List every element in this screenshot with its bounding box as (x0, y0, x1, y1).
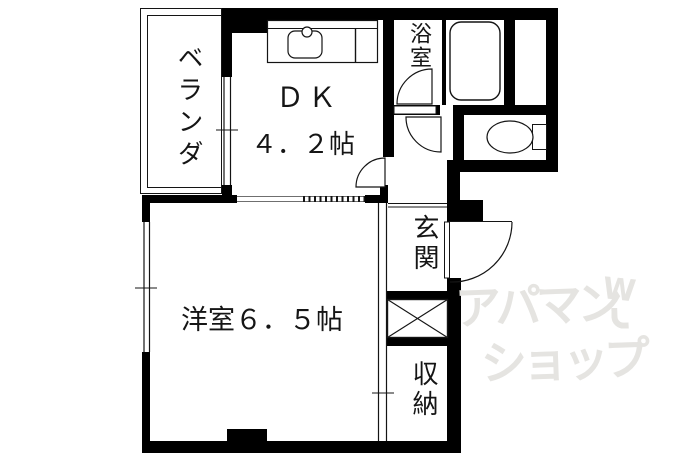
wall-segment (453, 160, 558, 172)
wall-segment (447, 160, 460, 222)
wall-segment (222, 185, 232, 195)
wall-segment (142, 352, 150, 442)
wall-segment (365, 195, 388, 203)
wall-segment (453, 115, 464, 160)
sliding-door-dk-western (237, 197, 365, 202)
kitchen-counter-icon (268, 21, 378, 63)
room-label-storage: 収納 (405, 360, 442, 420)
wall-pillar (227, 429, 267, 442)
door-arc-bathroom (397, 69, 432, 104)
wall-segment (447, 278, 461, 453)
wall-segment (546, 8, 558, 172)
entrance-door (445, 222, 513, 283)
wall-segment (142, 195, 237, 203)
wall-segment (453, 105, 558, 115)
room-label-western-room: 洋室６．５帖 (181, 298, 343, 337)
wall-segment (460, 200, 483, 222)
room-label-entrance: 玄関 (406, 214, 443, 274)
wall-segment (383, 8, 394, 157)
wall-segment (442, 20, 446, 105)
crossed-box (388, 300, 448, 338)
wall-segment (387, 337, 460, 346)
wall-segment (504, 16, 515, 105)
wall-segment (142, 441, 461, 453)
genkan-step-line (388, 204, 447, 208)
wall-segment (387, 291, 460, 300)
wall-segment (222, 33, 232, 77)
room-label-dk: ＤＫ (276, 76, 340, 116)
door-arc-dk-hall (356, 158, 385, 187)
room-size-dk: ４．２帖 (251, 124, 355, 161)
window-veranda-dk (216, 77, 238, 185)
door-arc-toilet (406, 117, 441, 152)
floorplan-image: ベランダ 浴室 ＤＫ ４．２帖 洋室６．５帖 玄関 収納 アパマン W ショップ (0, 0, 690, 460)
door-arc-entrance (450, 222, 512, 282)
bathtub-icon (450, 22, 500, 100)
toilet-icon (487, 121, 547, 153)
bathroom-door-sill (394, 106, 436, 114)
floorplan-linework (0, 0, 690, 460)
faucet-icon (302, 27, 312, 37)
room-label-bathroom: 浴室 (402, 22, 434, 70)
wall-segment (222, 20, 268, 33)
window-western-room (135, 222, 157, 352)
room-label-veranda: ベランダ (170, 44, 207, 172)
